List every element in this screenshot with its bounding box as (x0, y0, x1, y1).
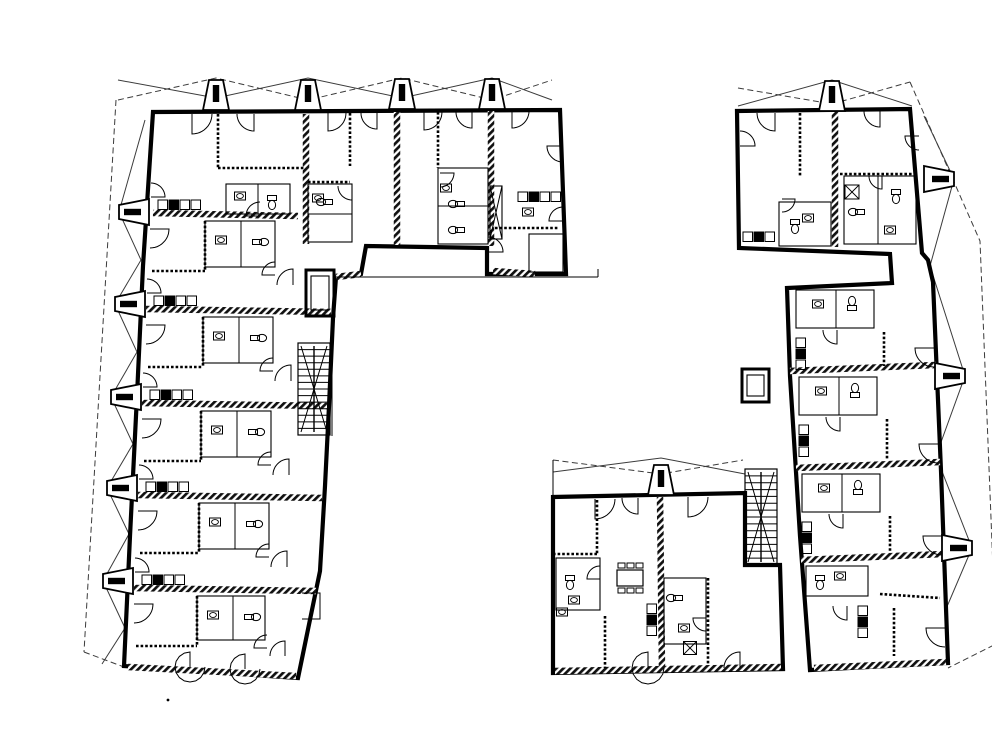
facade-pillar-core-icon (950, 545, 967, 551)
site-boundary-dashed-line (553, 460, 743, 474)
floor-plan (40, 16, 992, 724)
facade-pillar-core-icon (305, 85, 311, 102)
elevator-shaft-car (747, 375, 764, 396)
facade-pillar-core-icon (399, 84, 405, 101)
facade-pillar-core-icon (120, 301, 137, 307)
hatched-wall (142, 403, 327, 406)
site-boundary-line (553, 458, 745, 474)
site-boundary-dashed-line (84, 652, 124, 667)
facade-pillar-core-icon (116, 394, 133, 400)
hatched-wall (146, 309, 331, 312)
hatched-wall (660, 497, 662, 670)
kitchen-counter-icon (799, 436, 809, 446)
kitchen-counter-icon (161, 390, 171, 400)
hatched-wall (134, 588, 316, 591)
kitchen-counter-icon (647, 615, 657, 625)
hatched-wall (555, 667, 781, 671)
kitchen-counter-icon (157, 482, 167, 492)
facade-pillar-core-icon (658, 470, 664, 487)
kitchen-counter-icon (802, 533, 812, 543)
kitchen-counter-icon (858, 617, 868, 627)
facade-pillar-core-icon (829, 86, 835, 103)
elevator-shaft (742, 369, 769, 402)
kitchen-counter-icon (529, 192, 539, 202)
kitchen-counter-icon (153, 575, 163, 585)
wall-outline-south-block (553, 493, 783, 673)
facade-pillar-core-icon (489, 84, 495, 101)
floor-plan-svg (40, 16, 992, 724)
kitchen-counter-icon (169, 200, 179, 210)
facade-pillar-core-icon (932, 176, 949, 182)
facade-pillar-core-icon (124, 209, 141, 215)
facade-pillar-core-icon (943, 373, 960, 379)
kitchen-counter-icon (165, 296, 175, 306)
site-boundary-dashed-line (84, 100, 116, 652)
facade-pillar-core-icon (112, 485, 129, 491)
facade-pillar-core-icon (213, 85, 219, 102)
kitchen-counter-icon (754, 232, 764, 242)
survey-dot (167, 699, 170, 702)
kitchen-counter-icon (796, 349, 806, 359)
hatched-wall (138, 495, 322, 498)
facade-pillar-core-icon (108, 578, 125, 584)
